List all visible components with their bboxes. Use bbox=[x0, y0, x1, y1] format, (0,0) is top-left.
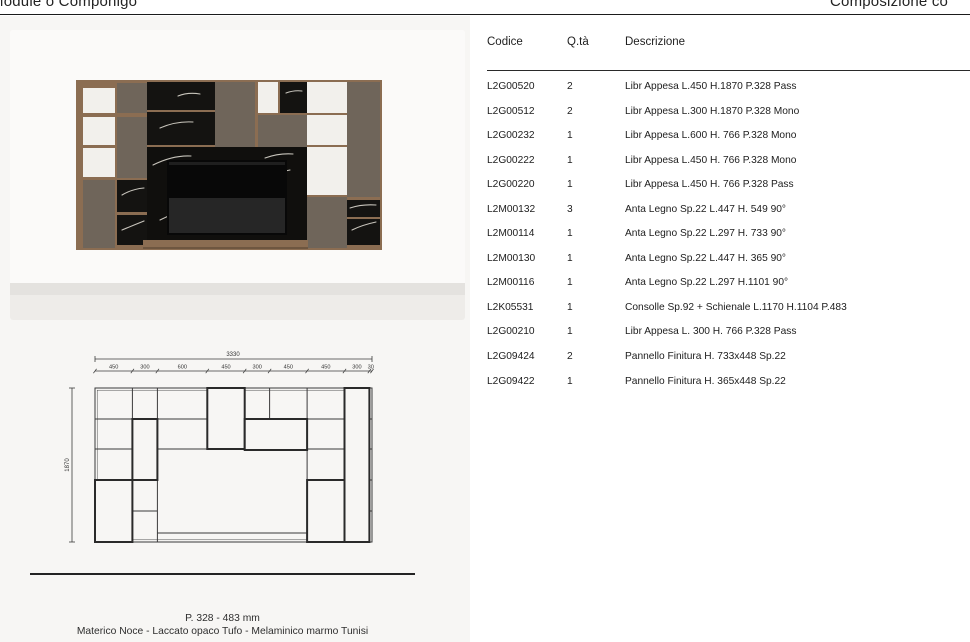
segment-dim-label: 300 bbox=[352, 365, 361, 371]
segment-dim-label: 300 bbox=[140, 365, 149, 371]
cell-desc: Anta Legno Sp.22 L.447 H. 365 90° bbox=[625, 253, 786, 264]
cell-desc: Libr Appesa L.450 H.1870 P.328 Pass bbox=[625, 81, 796, 92]
table-row: L2G002101Libr Appesa L. 300 H. 766 P.328… bbox=[487, 320, 970, 345]
wall-unit-photo-illustration bbox=[10, 30, 465, 320]
table-header-rule bbox=[487, 70, 970, 71]
caption-finishes: Materico Noce - Laccato opaco Tufo - Mel… bbox=[30, 626, 415, 639]
cell-qty: 1 bbox=[567, 130, 573, 141]
column-header-qta: Q.tà bbox=[567, 36, 589, 48]
segment-dim-label: 450 bbox=[284, 365, 293, 371]
cell-code: L2M00114 bbox=[487, 228, 534, 239]
caption: P. 328 - 483 mm Materico Noce - Laccato … bbox=[30, 613, 415, 638]
cell-code: L2G09422 bbox=[487, 376, 535, 387]
column-header-codice: Codice bbox=[487, 36, 523, 48]
header-rule bbox=[0, 14, 970, 15]
cell-desc: Pannello Finitura H. 365x448 Sp.22 bbox=[625, 376, 786, 387]
segment-dim-label: 450 bbox=[109, 365, 118, 371]
cell-qty: 3 bbox=[567, 204, 573, 215]
cell-code: L2M00116 bbox=[487, 277, 534, 288]
segment-dim-label: 450 bbox=[221, 365, 230, 371]
page-title-left: Module o Componigo bbox=[0, 0, 137, 10]
cell-desc: Libr Appesa L.600 H. 766 P.328 Mono bbox=[625, 130, 796, 141]
cell-qty: 1 bbox=[567, 155, 573, 166]
cell-desc: Anta Legno Sp.22 L.297 H.1101 90° bbox=[625, 277, 788, 288]
table-row: L2K055311Consolle Sp.92 + Schienale L.11… bbox=[487, 296, 970, 321]
cell-desc: Libr Appesa L.450 H. 766 P.328 Pass bbox=[625, 179, 794, 190]
cell-qty: 2 bbox=[567, 351, 573, 362]
cell-qty: 1 bbox=[567, 179, 573, 190]
table-row: L2M001141Anta Legno Sp.22 L.297 H. 733 9… bbox=[487, 222, 970, 247]
column-header-descrizione: Descrizione bbox=[625, 36, 685, 48]
cell-code: L2G00222 bbox=[487, 155, 535, 166]
cell-qty: 2 bbox=[567, 106, 573, 117]
segment-dim-label: 450 bbox=[321, 365, 330, 371]
cell-qty: 1 bbox=[567, 302, 573, 313]
table-row: L2M001161Anta Legno Sp.22 L.297 H.1101 9… bbox=[487, 271, 970, 296]
overall-height-dim: 1870 bbox=[65, 458, 71, 472]
cell-qty: 1 bbox=[567, 376, 573, 387]
cell-desc: Anta Legno Sp.22 L.297 H. 733 90° bbox=[625, 228, 786, 239]
cell-code: L2G09424 bbox=[487, 351, 535, 362]
page-title-right: Composizione co bbox=[830, 0, 948, 10]
cell-desc: Libr Appesa L. 300 H. 766 P.328 Pass bbox=[625, 326, 796, 337]
cell-qty: 1 bbox=[567, 277, 573, 288]
table-row: L2G094242Pannello Finitura H. 733x448 Sp… bbox=[487, 345, 970, 370]
cell-desc: Pannello Finitura H. 733x448 Sp.22 bbox=[625, 351, 786, 362]
cell-code: L2G00210 bbox=[487, 326, 535, 337]
table-row: L2M001323Anta Legno Sp.22 L.447 H. 549 9… bbox=[487, 198, 970, 223]
caption-rule bbox=[30, 573, 415, 575]
table-row: L2G002221Libr Appesa L.450 H. 766 P.328 … bbox=[487, 149, 970, 174]
catalog-page: Module o Componigo Composizione co bbox=[0, 0, 970, 642]
table-row: L2G002201Libr Appesa L.450 H. 766 P.328 … bbox=[487, 173, 970, 198]
table-row: L2G002321Libr Appesa L.600 H. 766 P.328 … bbox=[487, 124, 970, 149]
table-row: L2M001301Anta Legno Sp.22 L.447 H. 365 9… bbox=[487, 247, 970, 272]
cell-code: L2K05531 bbox=[487, 302, 533, 313]
cell-desc: Anta Legno Sp.22 L.447 H. 549 90° bbox=[625, 204, 786, 215]
cell-code: L2M00130 bbox=[487, 253, 535, 264]
cell-code: L2G00232 bbox=[487, 130, 535, 141]
parts-table-body: L2G005202Libr Appesa L.450 H.1870 P.328 … bbox=[487, 75, 970, 394]
overall-width-dim: 3330 bbox=[226, 352, 240, 358]
segment-dim-label: 30 bbox=[368, 365, 374, 371]
cell-code: L2G00512 bbox=[487, 106, 535, 117]
cell-qty: 1 bbox=[567, 253, 573, 264]
product-panel: 3330 45030060045030045045030030 1870 bbox=[0, 16, 470, 642]
cell-qty: 2 bbox=[567, 81, 573, 92]
cell-desc: Consolle Sp.92 + Schienale L.1170 H.1104… bbox=[625, 302, 847, 313]
cell-code: L2G00220 bbox=[487, 179, 535, 190]
segment-dim-labels: 45030060045030045045030030 bbox=[109, 365, 374, 371]
segment-dim-label: 300 bbox=[252, 365, 261, 371]
cell-qty: 1 bbox=[567, 228, 573, 239]
technical-drawing: 3330 45030060045030045045030030 1870 bbox=[40, 345, 460, 570]
table-row: L2G094221Pannello Finitura H. 365x448 Sp… bbox=[487, 370, 970, 395]
cell-code: L2G00520 bbox=[487, 81, 535, 92]
table-row: L2G005122Libr Appesa L.300 H.1870 P.328 … bbox=[487, 100, 970, 125]
cell-desc: Libr Appesa L.300 H.1870 P.328 Mono bbox=[625, 106, 799, 117]
cell-desc: Libr Appesa L.450 H. 766 P.328 Mono bbox=[625, 155, 796, 166]
product-photo bbox=[10, 30, 465, 320]
table-row: L2G005202Libr Appesa L.450 H.1870 P.328 … bbox=[487, 75, 970, 100]
cell-code: L2M00132 bbox=[487, 204, 535, 215]
caption-depth: P. 328 - 483 mm bbox=[30, 613, 415, 626]
segment-dim-label: 600 bbox=[178, 365, 187, 371]
cell-qty: 1 bbox=[567, 326, 573, 337]
